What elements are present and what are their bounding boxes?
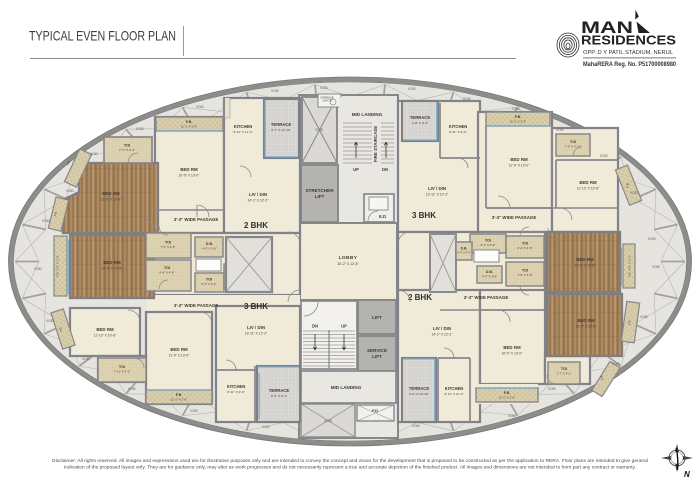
svg-text:13'-0" X 10'-8": 13'-0" X 10'-8" xyxy=(101,198,123,202)
svg-text:VOID: VOID xyxy=(42,219,50,223)
svg-text:13'-0" X 10'-8": 13'-0" X 10'-8" xyxy=(575,264,597,268)
svg-text:6'-2" X 10'-10": 6'-2" X 10'-10" xyxy=(409,392,429,396)
svg-text:6'-6" X 9'-4": 6'-6" X 9'-4" xyxy=(271,394,287,398)
svg-text:VOID: VOID xyxy=(630,191,638,195)
svg-text:E.D: E.D xyxy=(379,214,386,219)
svg-text:4'-3" X 3'-5": 4'-3" X 3'-5" xyxy=(202,247,217,251)
svg-text:STRETCHER: STRETCHER xyxy=(305,188,334,193)
svg-text:BED RM: BED RM xyxy=(170,347,188,352)
svg-text:VOID: VOID xyxy=(190,409,198,413)
svg-text:BED RM: BED RM xyxy=(96,327,114,332)
svg-text:7'-11" X 4'-1": 7'-11" X 4'-1" xyxy=(114,370,130,374)
svg-text:VOID: VOID xyxy=(66,189,74,193)
svg-text:FIRE STAIRCASE: FIRE STAIRCASE xyxy=(373,126,378,162)
svg-text:11'-1" X 2'-6": 11'-1" X 2'-6" xyxy=(499,396,515,400)
svg-text:VOID: VOID xyxy=(612,362,620,366)
svg-text:TERRACE: TERRACE xyxy=(269,388,289,393)
svg-text:KITCHEN: KITCHEN xyxy=(234,124,253,129)
svg-text:11'-0" X 13'-0": 11'-0" X 13'-0" xyxy=(509,164,530,168)
svg-text:VOID: VOID xyxy=(463,97,471,101)
svg-text:VOID: VOID xyxy=(412,424,420,428)
svg-text:13'-0" X 10'-8": 13'-0" X 10'-8" xyxy=(576,325,598,329)
svg-text:2 BHK: 2 BHK xyxy=(244,221,268,230)
svg-text:KITCHEN: KITCHEN xyxy=(449,124,468,129)
svg-text:F.B. 6'-3" X 2'-0": F.B. 6'-3" X 2'-0" xyxy=(56,255,60,277)
svg-text:LIV / DIN: LIV / DIN xyxy=(433,326,451,331)
svg-text:CHUTE: CHUTE xyxy=(322,99,331,103)
svg-text:DN: DN xyxy=(382,167,388,172)
svg-text:11'-0" X 13'-0": 11'-0" X 13'-0" xyxy=(169,354,190,358)
svg-text:16'-2" X 12'-6": 16'-2" X 12'-6" xyxy=(337,262,359,266)
svg-text:BED RM: BED RM xyxy=(576,257,594,262)
svg-text:13'-11" X 12'-2": 13'-11" X 12'-2" xyxy=(426,193,449,197)
svg-text:KITCHEN: KITCHEN xyxy=(227,384,246,389)
svg-text:VOID: VOID xyxy=(271,89,279,93)
svg-text:LIFT: LIFT xyxy=(372,354,382,359)
svg-text:3'-3" WIDE PASSAGE: 3'-3" WIDE PASSAGE xyxy=(174,303,219,308)
svg-text:BED RM: BED RM xyxy=(102,191,120,196)
svg-text:VOID: VOID xyxy=(548,387,556,391)
svg-text:indication of the proposed lay: indication of the proposed layout only. … xyxy=(64,465,636,471)
svg-text:VOID: VOID xyxy=(128,387,136,391)
svg-text:VOID: VOID xyxy=(136,127,144,131)
svg-text:MahaRERA Reg. No. P51700008980: MahaRERA Reg. No. P51700008980 xyxy=(583,61,676,68)
svg-text:F.B. 4'-0" X 2'-6": F.B. 4'-0" X 2'-6" xyxy=(628,255,632,277)
svg-text:4'-8" X 9'-4": 4'-8" X 9'-4" xyxy=(412,121,428,125)
svg-text:LOBBY: LOBBY xyxy=(339,255,358,261)
svg-text:VOID: VOID xyxy=(34,267,42,271)
svg-text:UP: UP xyxy=(341,324,347,329)
svg-text:F.D: F.D xyxy=(372,408,378,413)
svg-text:5'-3" X 3'-2": 5'-3" X 3'-2" xyxy=(201,282,216,286)
svg-text:VOID: VOID xyxy=(196,105,204,109)
svg-text:TOI: TOI xyxy=(206,278,212,282)
svg-text:D.B.: D.B. xyxy=(461,247,468,251)
svg-text:TOI: TOI xyxy=(119,365,125,369)
svg-text:6'-6" X 4'-6": 6'-6" X 4'-6" xyxy=(159,271,174,275)
svg-text:VOID: VOID xyxy=(640,315,648,319)
svg-text:3 BHK: 3 BHK xyxy=(412,211,436,220)
svg-text:10'-9" X 13'-0": 10'-9" X 13'-0" xyxy=(502,352,524,356)
svg-text:TOI: TOI xyxy=(164,266,170,270)
svg-text:14'-1" X 12'-2": 14'-1" X 12'-2" xyxy=(248,199,270,203)
svg-text:TOI: TOI xyxy=(522,242,528,246)
svg-text:VOID: VOID xyxy=(600,154,608,158)
svg-text:11'-1" X 2'-6": 11'-1" X 2'-6" xyxy=(171,398,187,402)
svg-text:OPP. D Y PATIL STADIUM, NERUL: OPP. D Y PATIL STADIUM, NERUL xyxy=(583,50,673,56)
svg-text:KITCHEN: KITCHEN xyxy=(445,386,464,391)
svg-text:VOID: VOID xyxy=(324,419,332,423)
svg-text:VOID: VOID xyxy=(82,357,90,361)
svg-text:F.B.: F.B. xyxy=(625,182,629,188)
svg-text:3'-3" WIDE PASSAGE: 3'-3" WIDE PASSAGE xyxy=(492,215,537,220)
svg-text:D.B.: D.B. xyxy=(486,270,493,274)
svg-text:F.B.: F.B. xyxy=(504,391,510,395)
svg-text:SERVICE: SERVICE xyxy=(367,348,387,353)
svg-text:5'-3" X 3'-2": 5'-3" X 3'-2" xyxy=(480,243,495,247)
svg-text:8'-11" X 9'-6": 8'-11" X 9'-6" xyxy=(227,390,245,394)
svg-text:VOID: VOID xyxy=(556,128,564,132)
svg-text:3'-3" WIDE PASSAGE: 3'-3" WIDE PASSAGE xyxy=(174,217,219,222)
svg-text:7'-5" X 4'-5": 7'-5" X 4'-5" xyxy=(160,245,175,249)
svg-text:UP: UP xyxy=(353,167,359,172)
svg-text:5'-7" X 10'-10": 5'-7" X 10'-10" xyxy=(271,128,291,132)
svg-text:F.B.: F.B. xyxy=(186,120,192,124)
svg-text:8'-11" X 11'-0": 8'-11" X 11'-0" xyxy=(233,130,252,134)
svg-text:BED RM: BED RM xyxy=(180,167,198,172)
svg-text:TOI: TOI xyxy=(124,143,131,148)
svg-text:VOID: VOID xyxy=(46,319,54,323)
svg-text:F.B.: F.B. xyxy=(515,115,521,119)
svg-text:Disclaimer: All rights reserve: Disclaimer: All rights reserved. All ima… xyxy=(52,458,648,464)
svg-text:BED RM: BED RM xyxy=(503,345,521,350)
svg-text:F.B.: F.B. xyxy=(176,393,182,397)
svg-text:D.B.: D.B. xyxy=(206,242,213,246)
svg-text:TOI: TOI xyxy=(561,367,567,371)
svg-text:10'-9" X 13'-0": 10'-9" X 13'-0" xyxy=(179,174,201,178)
svg-text:4'-3" X 3'-8": 4'-3" X 3'-8" xyxy=(482,275,497,279)
svg-text:BED RM: BED RM xyxy=(510,157,528,162)
svg-text:MID LANDING: MID LANDING xyxy=(352,112,383,117)
svg-text:BED RM: BED RM xyxy=(103,260,121,265)
svg-text:LIFT: LIFT xyxy=(372,315,382,320)
svg-text:11'-1" X 2'-6": 11'-1" X 2'-6" xyxy=(181,125,197,129)
svg-text:BED RM: BED RM xyxy=(579,180,597,185)
svg-text:TERRACE: TERRACE xyxy=(271,122,291,127)
svg-text:13'-11" X 12'-2": 13'-11" X 12'-2" xyxy=(245,332,268,336)
svg-text:TOI: TOI xyxy=(570,140,576,144)
svg-text:7'-7" X 4'-1": 7'-7" X 4'-1" xyxy=(119,148,135,152)
svg-text:TOI: TOI xyxy=(485,239,491,243)
svg-text:8'-11" X 11'-0": 8'-11" X 11'-0" xyxy=(444,392,463,396)
svg-text:LIV / DIN: LIV / DIN xyxy=(428,186,446,191)
svg-text:VOID: VOID xyxy=(408,87,416,91)
svg-text:14'-1" X 12'-2": 14'-1" X 12'-2" xyxy=(432,333,454,337)
svg-text:VOID: VOID xyxy=(648,237,656,241)
svg-text:11'-10" X 10'-8": 11'-10" X 10'-8" xyxy=(577,187,600,191)
svg-text:8'-11" X 9'-6": 8'-11" X 9'-6" xyxy=(449,130,467,134)
svg-text:VOID: VOID xyxy=(652,265,660,269)
svg-text:N: N xyxy=(684,470,690,479)
svg-text:VOID: VOID xyxy=(315,128,323,132)
svg-text:6'-4" X 4'-5": 6'-4" X 4'-5" xyxy=(517,246,532,250)
svg-text:TOI: TOI xyxy=(522,269,528,273)
svg-text:VOID: VOID xyxy=(508,414,516,418)
svg-text:VOID: VOID xyxy=(320,86,328,90)
svg-text:TERRACE: TERRACE xyxy=(409,386,429,391)
svg-text:3'-3" WIDE PASSAGE: 3'-3" WIDE PASSAGE xyxy=(464,295,509,300)
svg-text:VOID: VOID xyxy=(262,425,270,429)
svg-text:MID LANDING: MID LANDING xyxy=(331,385,362,390)
svg-text:2 BHK: 2 BHK xyxy=(408,293,432,302)
svg-text:LIV / DIN: LIV / DIN xyxy=(249,192,267,197)
svg-text:BED RM: BED RM xyxy=(577,318,595,323)
svg-text:LIFT: LIFT xyxy=(315,194,325,199)
svg-text:2'-4" X 3'-5": 2'-4" X 3'-5" xyxy=(457,251,471,255)
svg-text:11'-10" X 10'-8": 11'-10" X 10'-8" xyxy=(94,334,117,338)
svg-text:VOID: VOID xyxy=(90,152,98,156)
svg-text:VOID: VOID xyxy=(512,107,520,111)
svg-text:11'-1" X 2'-6": 11'-1" X 2'-6" xyxy=(510,120,526,124)
svg-text:13'-0" X 10'-8": 13'-0" X 10'-8" xyxy=(102,267,124,271)
svg-text:RESIDENCES: RESIDENCES xyxy=(581,33,676,48)
svg-text:DN: DN xyxy=(312,324,318,329)
svg-text:7'-5" X 4'-5": 7'-5" X 4'-5" xyxy=(517,273,532,277)
svg-text:LIV / DIN: LIV / DIN xyxy=(247,325,265,330)
svg-text:TYPICAL EVEN FLOOR PLAN: TYPICAL EVEN FLOOR PLAN xyxy=(29,28,176,44)
svg-text:3 BHK: 3 BHK xyxy=(244,302,268,311)
svg-text:7'-7" X 4'-1": 7'-7" X 4'-1" xyxy=(556,372,571,376)
svg-text:TERRACE: TERRACE xyxy=(410,115,430,120)
svg-text:TOI: TOI xyxy=(165,241,171,245)
